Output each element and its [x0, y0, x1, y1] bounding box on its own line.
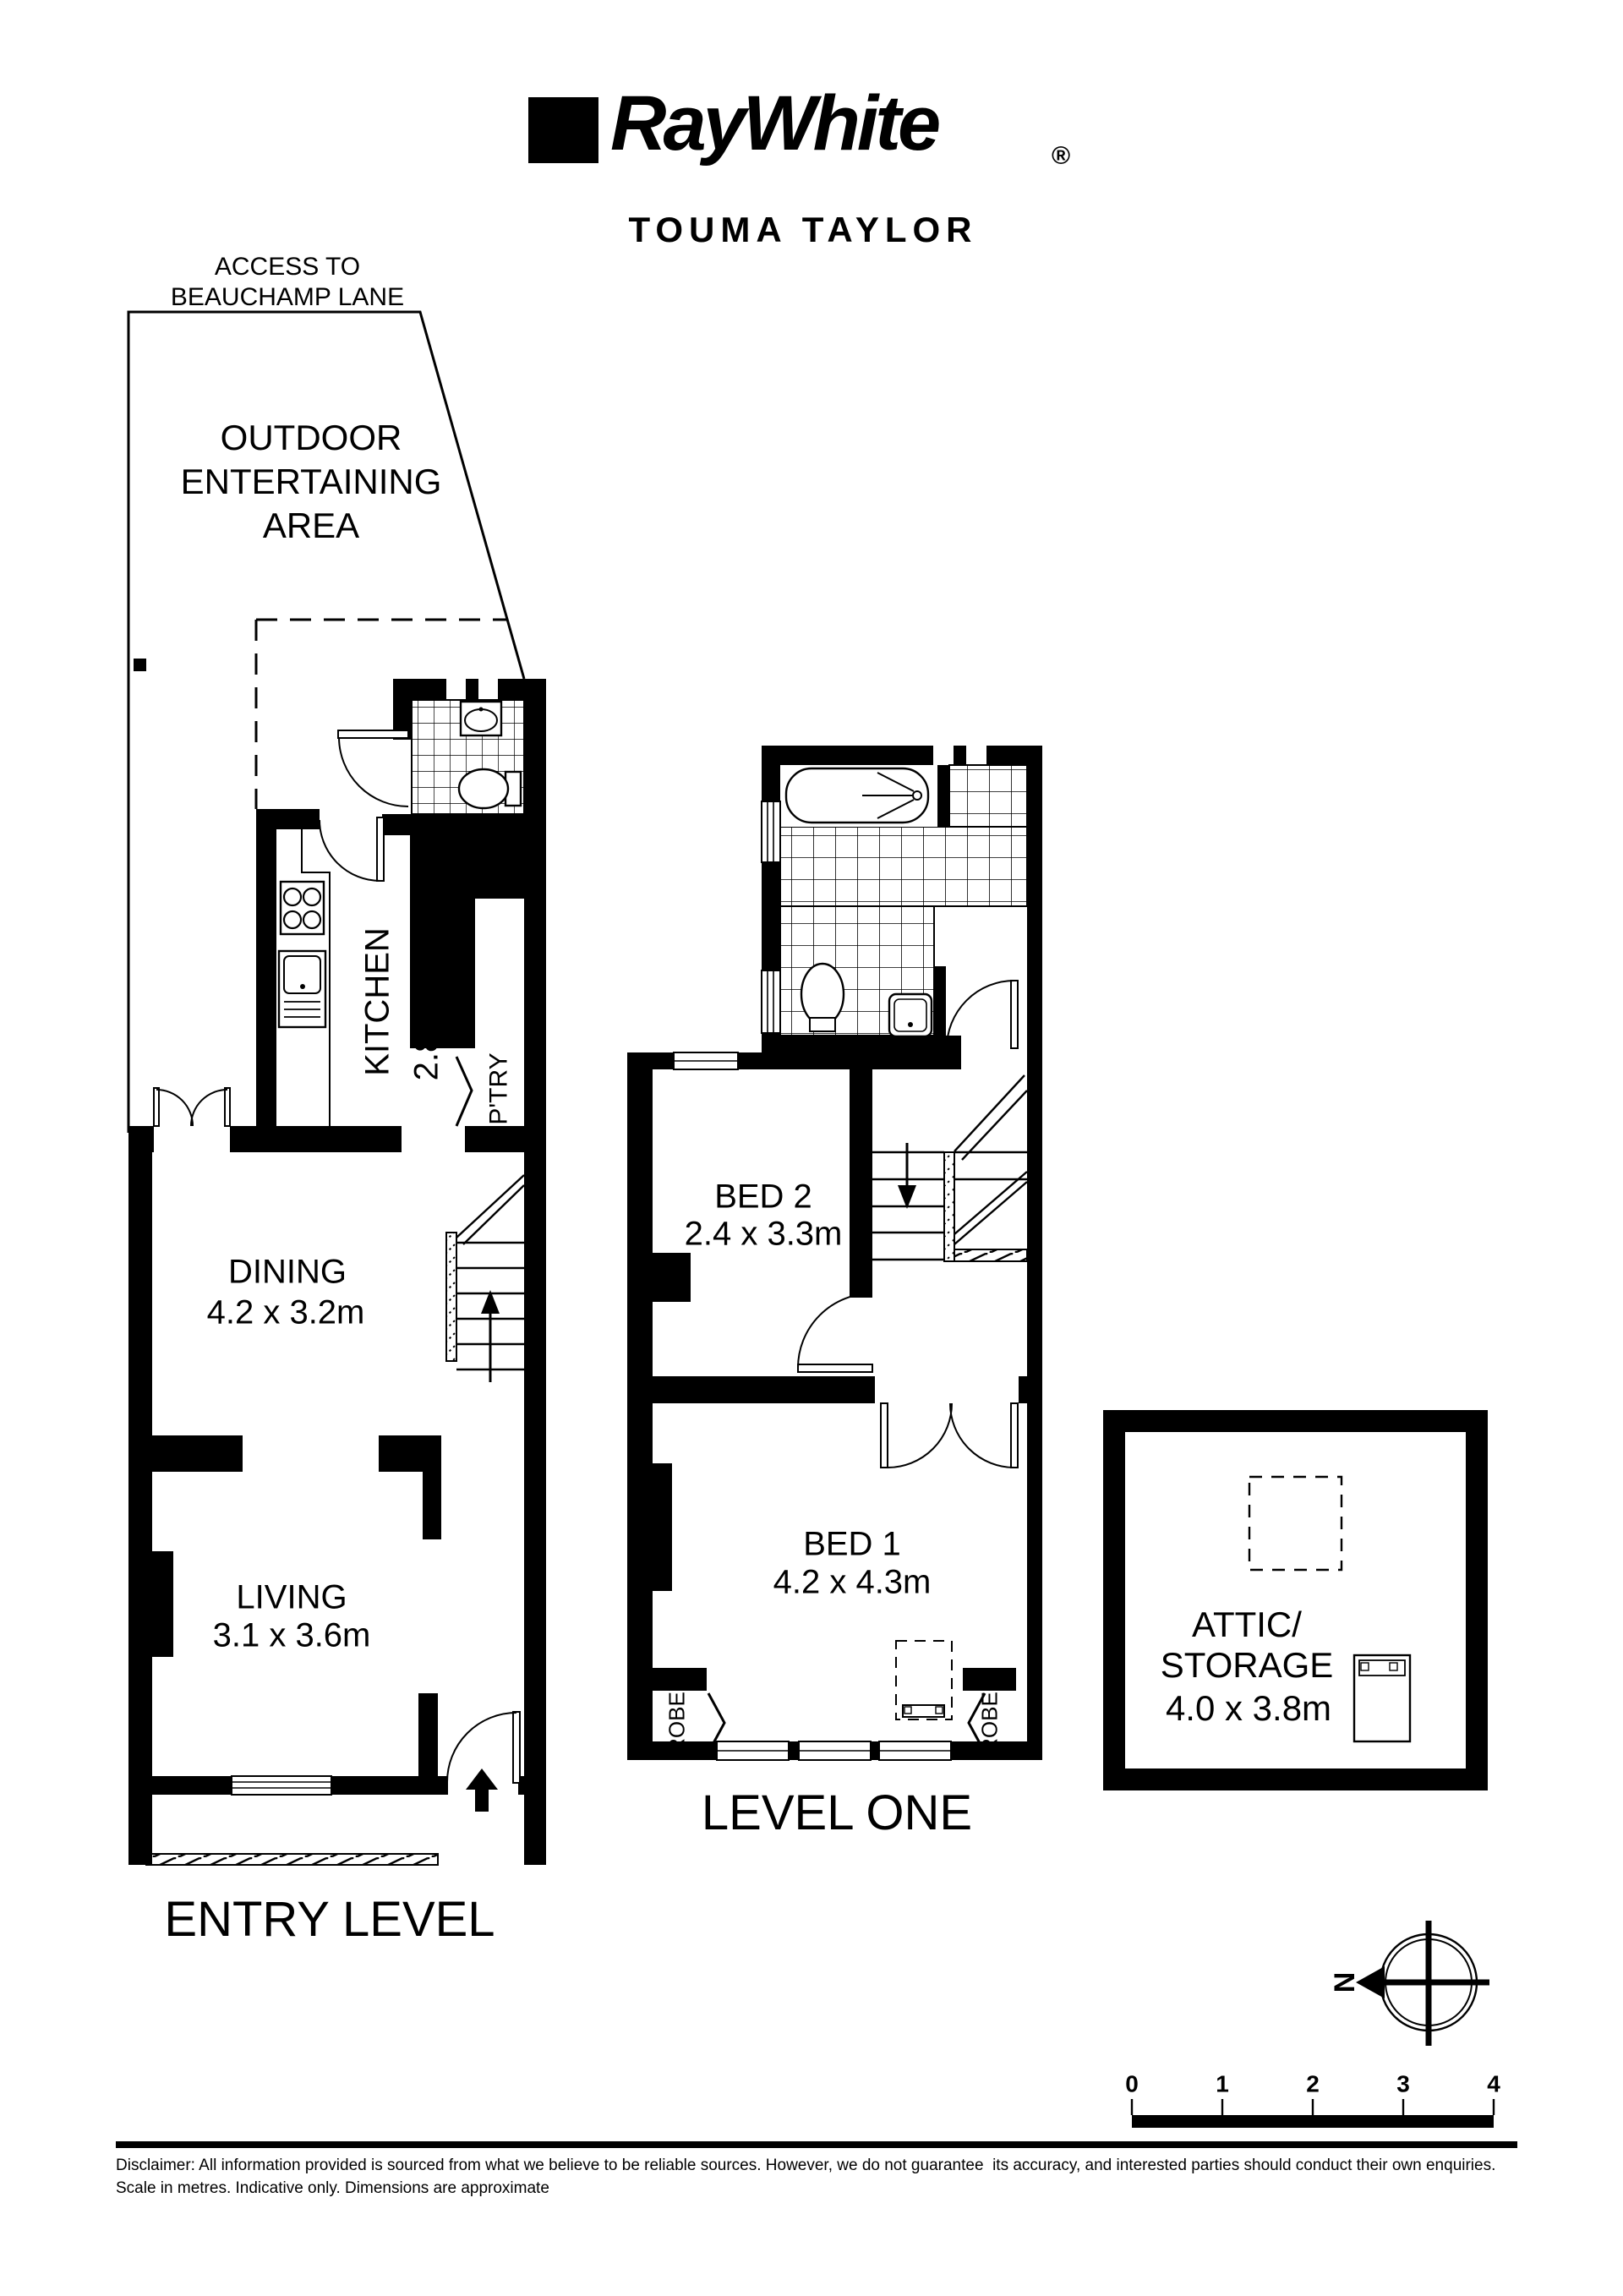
- bed2-window: [674, 1052, 738, 1069]
- robe-label-left: ROBE: [664, 1672, 691, 1774]
- room-dims-bed2: 2.4 x 3.3m: [594, 1214, 932, 1254]
- room-label-dining: DINING: [118, 1252, 456, 1292]
- wc-basin: [461, 702, 501, 735]
- bathroom-basin: [889, 994, 932, 1036]
- floorplan-page: RayWhite ® TOUMA TAYLOR ACCESS TO BEAUCH…: [0, 0, 1623, 2296]
- room-dims-attic: 4.0 x 3.8m: [1071, 1687, 1426, 1730]
- room-dims-living: 3.1 x 3.6m: [123, 1615, 461, 1655]
- scale-tick-4: 4: [1468, 2069, 1519, 2097]
- wc-toilet: [459, 769, 521, 808]
- disclaimer-line2: Scale in metres. Indicative only. Dimens…: [116, 2179, 549, 2199]
- room-label-bed2: BED 2: [594, 1177, 932, 1216]
- scale-tick-1: 1: [1197, 2069, 1248, 2097]
- compass-icon: [1356, 1921, 1489, 2046]
- bed1-double-doors: [881, 1403, 1018, 1468]
- room-label-pantry: P'TRY: [484, 1025, 513, 1152]
- porch-edge-hatch: [146, 1854, 438, 1865]
- room-label-attic: ATTIC/ STORAGE: [1069, 1604, 1424, 1686]
- footer-divider: [116, 2141, 1517, 2148]
- living-window: [232, 1776, 331, 1795]
- disclaimer-line1: Disclaimer: All information provided is …: [116, 2157, 1495, 2176]
- scale-tick-3: 3: [1378, 2069, 1429, 2097]
- bed1-fireplace: [896, 1641, 952, 1719]
- bathtub: [780, 765, 937, 827]
- room-dims-bed1: 4.2 x 4.3m: [683, 1562, 1021, 1602]
- wc-door: [338, 730, 408, 806]
- room-dims-dining: 4.2 x 3.2m: [117, 1293, 455, 1332]
- entry-stairs: [446, 1175, 524, 1382]
- boundary-post: [134, 659, 146, 671]
- floor-label-level-one: LEVEL ONE: [541, 1785, 1133, 1842]
- robe-label-right: ROBE: [977, 1672, 1003, 1774]
- raywhite-logo-square: [528, 97, 598, 163]
- room-dims-kitchen: 2.8 x 3.3m: [407, 875, 446, 1129]
- agency-name: TOUMA TAYLOR: [389, 210, 1217, 250]
- pantry-bifold-door: [456, 1057, 472, 1126]
- kitchen-door: [320, 817, 384, 881]
- floor-label-entry-level: ENTRY LEVEL: [34, 1891, 626, 1949]
- floorplan-graphics: [0, 0, 1623, 2296]
- dining-french-doors: [154, 1088, 230, 1126]
- room-label-living: LIVING: [123, 1577, 461, 1617]
- bed2-door: [798, 1293, 872, 1372]
- registered-mark: ®: [1052, 142, 1070, 171]
- raywhite-logo-text: RayWhite: [610, 85, 937, 162]
- room-label-kitchen: KITCHEN: [358, 875, 397, 1129]
- scale-tick-2: 2: [1287, 2069, 1338, 2097]
- attic-plan: [1103, 1410, 1488, 1790]
- room-label-outdoor: OUTDOOR ENTERTAINING AREA: [91, 416, 531, 548]
- kitchen-cooktop: [281, 882, 324, 934]
- scale-tick-0: 0: [1107, 2069, 1157, 2097]
- entry-arrow: [466, 1768, 498, 1812]
- kitchen-sink: [279, 951, 325, 1027]
- access-note: ACCESS TO BEAUCHAMP LANE: [68, 252, 507, 313]
- compass-north-label: N: [1328, 1957, 1362, 2008]
- bed1-windows: [717, 1741, 951, 1760]
- scale-bar: [1132, 2099, 1494, 2128]
- room-label-bed1: BED 1: [683, 1524, 1021, 1564]
